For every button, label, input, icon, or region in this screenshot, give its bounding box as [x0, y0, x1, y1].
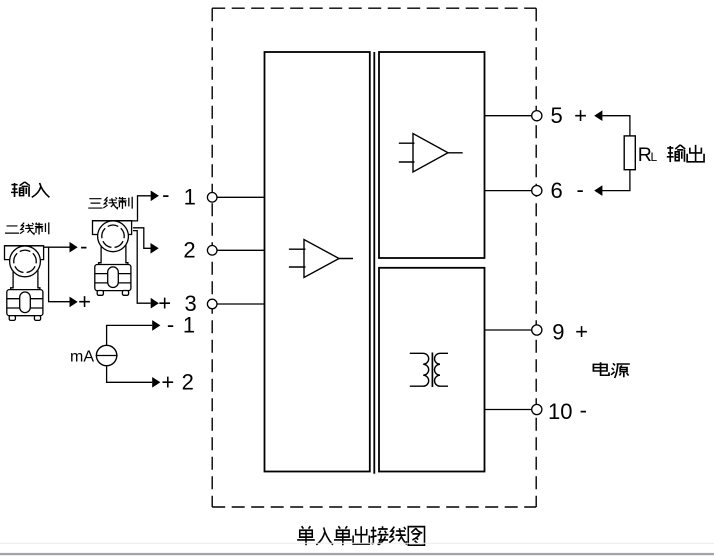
svg-text:1: 1 — [183, 313, 195, 338]
svg-text:-: - — [167, 312, 174, 337]
svg-text:+: + — [161, 370, 174, 395]
svg-text:2: 2 — [182, 370, 194, 395]
svg-text:L: L — [651, 150, 658, 164]
svg-text:9: 9 — [552, 320, 564, 345]
svg-text:-: - — [577, 177, 584, 202]
svg-text:+: + — [575, 319, 588, 344]
svg-text:+: + — [574, 103, 587, 128]
svg-text:10: 10 — [548, 399, 572, 424]
svg-text:-: - — [80, 234, 87, 259]
svg-text:-: - — [162, 182, 169, 207]
svg-text:6: 6 — [550, 178, 562, 203]
svg-text:+: + — [78, 289, 91, 314]
svg-text:mA: mA — [70, 349, 94, 366]
svg-text:2: 2 — [183, 238, 195, 263]
svg-text:5: 5 — [550, 103, 562, 128]
svg-text:-: - — [580, 398, 587, 423]
svg-text:1: 1 — [184, 185, 196, 210]
